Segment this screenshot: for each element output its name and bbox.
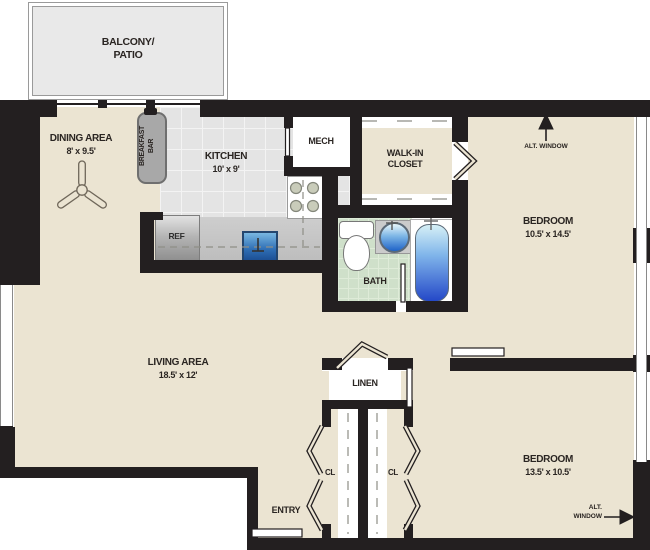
breakfast-bar-line1: BREAKFAST bbox=[139, 126, 146, 166]
bath-label: BATH bbox=[345, 276, 405, 287]
closet-right-label: CL bbox=[383, 468, 403, 478]
kitchen-sink bbox=[242, 231, 278, 262]
wall-mech-bottom bbox=[284, 167, 352, 176]
wall-left-corner bbox=[0, 427, 15, 469]
bedroom2-dims: 13.5' x 10.5' bbox=[525, 467, 570, 477]
wall-linen-bottom bbox=[322, 400, 413, 409]
kitchen-label: KITCHEN 10' x 9' bbox=[166, 151, 286, 176]
entry-label: ENTRY bbox=[256, 505, 316, 516]
wall-right-bottom bbox=[633, 460, 650, 550]
closet-left-interior bbox=[338, 409, 358, 538]
bedroom1-dims: 10.5' x 14.5' bbox=[525, 229, 570, 239]
floor-plan: BALCONY/ PATIO DINING AREA 8' x 9.5' KIT… bbox=[0, 0, 650, 550]
wall-bottom bbox=[247, 538, 650, 550]
kitchen-dims: 10' x 9' bbox=[213, 164, 240, 174]
bedroom2-label: BEDROOM 13.5' x 10.5' bbox=[488, 454, 608, 479]
walkin-shelf-bottom bbox=[360, 194, 452, 205]
wall-bath-bottom-left bbox=[322, 301, 396, 312]
wall-walkin-right-top bbox=[452, 113, 468, 142]
dining-dims: 8' x 9.5' bbox=[66, 146, 95, 156]
linen-label: LINEN bbox=[329, 378, 401, 389]
wall-walkin-bath bbox=[338, 205, 468, 218]
alt-window-bottom-label: ALT. WINDOW bbox=[554, 504, 602, 522]
wall-bath-bottom-right bbox=[406, 301, 468, 312]
stove bbox=[287, 176, 324, 219]
wall-linen-stub-right bbox=[388, 358, 413, 370]
closet-left-label: CL bbox=[320, 468, 340, 478]
bedroom1-label: BEDROOM 10.5' x 14.5' bbox=[488, 216, 608, 241]
closet-right-text: CL bbox=[388, 468, 398, 477]
bedroom2-doorway-floor bbox=[413, 358, 450, 371]
alt-window-bottom-line1: ALT. bbox=[589, 504, 602, 511]
wall-top-main bbox=[200, 100, 650, 117]
window-right bbox=[636, 117, 647, 462]
dining-name: DINING AREA bbox=[50, 133, 112, 144]
wall-dining-stub bbox=[140, 212, 154, 260]
living-name: LIVING AREA bbox=[148, 357, 209, 368]
ref-text: REF bbox=[168, 231, 184, 241]
mech-label: MECH bbox=[291, 136, 351, 147]
bedroom2-name: BEDROOM bbox=[523, 454, 573, 465]
breakfast-bar-line2: BAR bbox=[148, 139, 155, 153]
bedroom1-name: BEDROOM bbox=[523, 216, 573, 227]
wall-closet-stub-rt bbox=[404, 409, 413, 427]
closet-left-text: CL bbox=[325, 468, 335, 477]
mech-name: MECH bbox=[308, 136, 333, 146]
wall-under-counter bbox=[140, 260, 338, 273]
balcony-label-line2: PATIO bbox=[113, 49, 142, 61]
entry-text: ENTRY bbox=[272, 505, 301, 515]
hall-floor bbox=[322, 312, 468, 358]
living-dims: 18.5' x 12' bbox=[159, 370, 198, 380]
wall-linen-stub-left bbox=[322, 358, 342, 370]
kitchen-name: KITCHEN bbox=[205, 151, 247, 162]
walkin-line1: WALK-IN bbox=[387, 148, 423, 158]
balcony-label-line1: BALCONY/ bbox=[102, 36, 154, 48]
walkin-label: WALK-IN CLOSET bbox=[346, 148, 464, 171]
alt-window-top-text: ALT. WINDOW bbox=[524, 143, 568, 150]
wall-living-bottom bbox=[0, 467, 258, 478]
bathtub bbox=[415, 224, 449, 302]
linen-name: LINEN bbox=[352, 378, 378, 388]
wall-between-bedrooms bbox=[450, 358, 634, 371]
walkin-line2: CLOSET bbox=[388, 159, 423, 169]
wall-closet-stub-lt bbox=[322, 409, 331, 427]
wall-mech-stub-top bbox=[284, 117, 293, 128]
alt-window-top-label: ALT. WINDOW bbox=[506, 143, 586, 151]
bath-sink-bowl bbox=[379, 222, 410, 253]
alt-window-bottom-line2: WINDOW bbox=[573, 513, 602, 520]
breakfast-bar-label: BREAKFAST BAR bbox=[138, 112, 162, 180]
balcony-label: BALCONY/ PATIO bbox=[48, 36, 208, 62]
wall-closet-stub-lb bbox=[322, 524, 331, 538]
wall-bath-right bbox=[452, 218, 468, 312]
wall-closet-divider bbox=[358, 409, 368, 538]
ref-label: REF bbox=[155, 231, 198, 242]
living-label: LIVING AREA 18.5' x 12' bbox=[118, 357, 238, 382]
wall-kitchen-bath bbox=[322, 167, 338, 312]
bath-name: BATH bbox=[363, 276, 386, 286]
dining-label: DINING AREA 8' x 9.5' bbox=[21, 133, 141, 158]
window-left bbox=[0, 285, 13, 426]
wall-closet-stub-rb bbox=[404, 524, 413, 538]
toilet-bowl bbox=[343, 235, 370, 271]
